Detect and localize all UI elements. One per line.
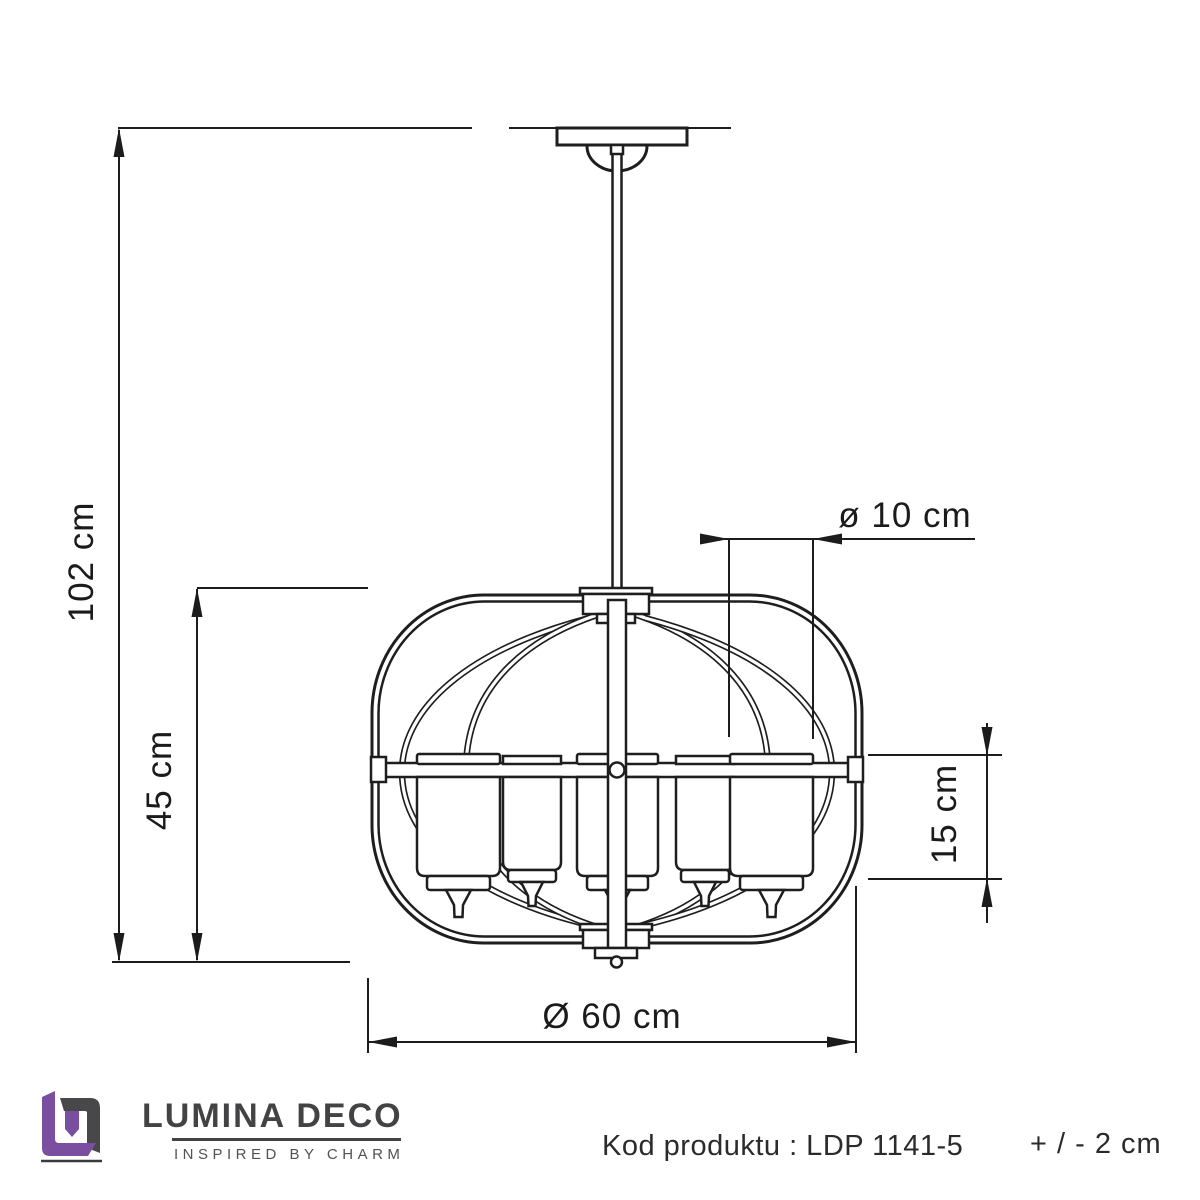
dimension-total-height: 102 cm (62, 128, 350, 962)
brand-name: LUMINA DECO (142, 1099, 404, 1133)
bottom-finial (595, 948, 637, 968)
arrow-up (982, 878, 993, 907)
arrow-up (114, 128, 125, 157)
lumina-deco-logo-icon (34, 1085, 126, 1171)
shade-body (503, 777, 561, 870)
shade-step (740, 876, 803, 890)
arrow-down (982, 727, 993, 756)
brand-text: LUMINA DECO INSPIRED BY CHARM (142, 1085, 404, 1163)
brand-block: LUMINA DECO INSPIRED BY CHARM (34, 1085, 404, 1171)
dimension-label-shade-height: 15 cm (925, 764, 964, 864)
bar-endcap-left (371, 757, 386, 782)
lamp-dimension-drawing: 102 cm 45 cm ø 10 cm 15 cm (0, 0, 1200, 1200)
shade-cap (417, 754, 500, 764)
shade-step (427, 876, 490, 890)
shade-cap (730, 754, 813, 764)
hanging-rod (613, 150, 622, 592)
dimension-label-shade-diameter: ø 10 cm (838, 496, 971, 535)
brand-rule (172, 1138, 401, 1141)
arrow-down (114, 933, 125, 962)
logo-inner-tab (65, 1111, 79, 1137)
rod-notch (611, 145, 623, 154)
shade-cap (503, 756, 561, 764)
shade-body (730, 777, 813, 876)
arrow-left (813, 534, 842, 545)
shade-step (681, 870, 729, 882)
shade-step (508, 870, 556, 882)
brand-tagline: INSPIRED BY CHARM (174, 1146, 404, 1163)
shade-cap (676, 756, 734, 764)
ceiling-mount (557, 128, 687, 592)
arrow-up (192, 588, 203, 617)
shade-body (676, 777, 734, 870)
center-hub (610, 763, 625, 778)
arrow-down (192, 933, 203, 962)
dimension-label-body-diameter: Ø 60 cm (542, 997, 681, 1036)
finial-ball (611, 957, 622, 968)
arrow-right (700, 534, 729, 545)
arrow-right (827, 1037, 856, 1048)
dimension-label-total-height: 102 cm (62, 502, 101, 623)
dimension-label-body-height: 45 cm (140, 730, 179, 830)
shade-body (417, 777, 500, 876)
dimension-shade-height: 15 cm (868, 723, 1002, 923)
bar-endcap-right (848, 757, 863, 782)
product-code: Kod produktu : LDP 1141-5 (602, 1130, 963, 1163)
ceiling-canopy (557, 128, 687, 145)
dimension-body-height: 45 cm (140, 588, 368, 962)
product-spec-sheet: 102 cm 45 cm ø 10 cm 15 cm (0, 0, 1200, 1200)
arrow-left (368, 1037, 397, 1048)
tolerance-note: + / - 2 cm (1030, 1128, 1162, 1161)
